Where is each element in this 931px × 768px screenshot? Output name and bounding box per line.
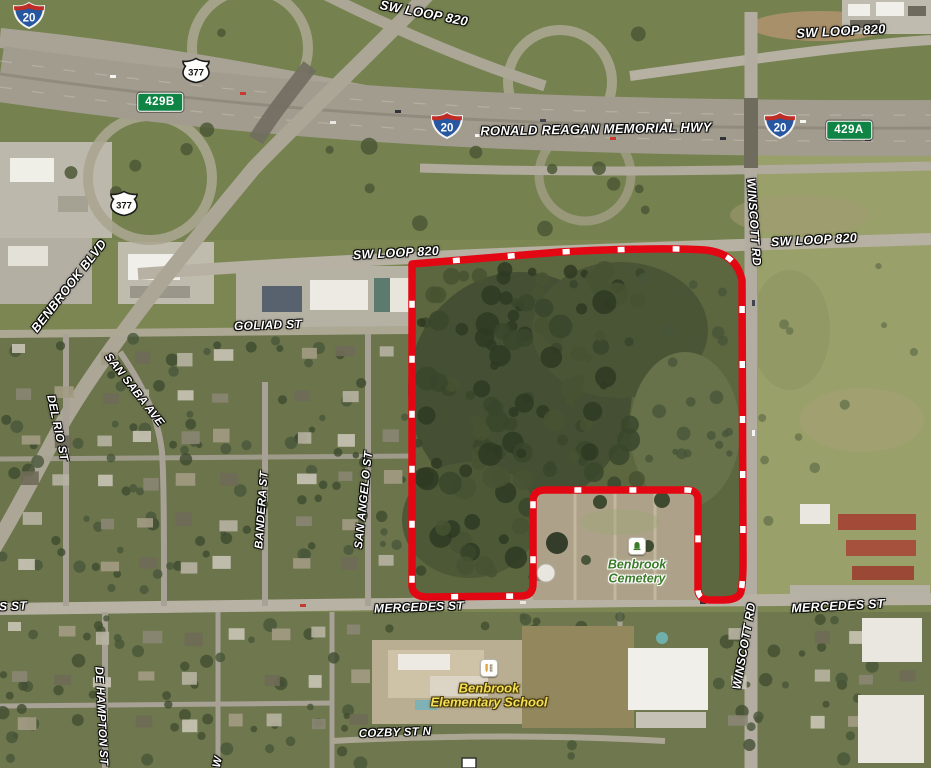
i20-shield-right: 20 [763,112,797,145]
street-label-san-saba-ave: SAN SABA AVE [102,351,166,428]
street-label-del-rio-st: DEL RIO ST [44,394,70,462]
street-label-ronald-reagan-memorial-hwy: RONALD REAGAN MEMORIAL HWY [480,119,712,138]
svg-text:377: 377 [188,68,204,79]
street-label-goliad-st: GOLIAD ST [234,317,302,333]
street-label-winscott-rd-south: WINSCOTT RD [729,601,758,690]
i20-shield-center: 20 [430,112,464,145]
svg-text:20: 20 [23,13,36,25]
poi-label-benbrook-cemetery: BenbrookCemetery [608,558,666,586]
svg-text:377: 377 [116,201,132,212]
street-label-mercedes-st-east: MERCEDES ST [791,597,885,616]
street-label-sw-loop-820-top-right: SW LOOP 820 [796,21,886,41]
aerial-map: SW LOOP 820SW LOOP 820RONALD REAGAN MEMO… [0,0,931,768]
street-label-bandera-st: BANDERA ST [253,471,270,550]
street-label-sw-loop-820-mid: SW LOOP 820 [353,244,440,262]
street-label-cozby-st-n: COZBY ST N [359,726,432,741]
map-label-layer: SW LOOP 820SW LOOP 820RONALD REAGAN MEMO… [0,0,931,768]
street-label-san-angelo-st: SAN ANGELO ST [353,451,375,550]
exit-sign-429a: 429A [826,121,872,140]
street-label-mercedes-st-west-fragment: S ST [0,599,27,614]
us377-shield-south: 377 [108,190,140,222]
us377-shield-north: 377 [180,57,212,89]
svg-text:20: 20 [774,123,787,135]
street-label-street-fragment-w: W [211,755,225,768]
street-label-de-hampton-st: DE HAMPTON ST [92,666,109,765]
poi-label-benbrook-elementary-school: BenbrookElementary School [430,682,547,711]
exit-sign-429b: 429B [137,93,183,112]
street-label-sw-loop-820-top: SW LOOP 820 [379,0,470,29]
cemetery-icon [628,537,646,555]
street-label-mercedes-st-center: MERCEDES ST [374,598,464,615]
i20-shield-top-left: 20 [12,2,46,35]
street-label-winscott-rd-north: WINSCOTT RD [744,178,764,267]
street-label-sw-loop-820-right: SW LOOP 820 [771,231,858,249]
school-icon [480,659,498,677]
street-label-benbrook-blvd: BENBROOK BLVD [29,237,110,335]
svg-text:20: 20 [441,123,454,135]
